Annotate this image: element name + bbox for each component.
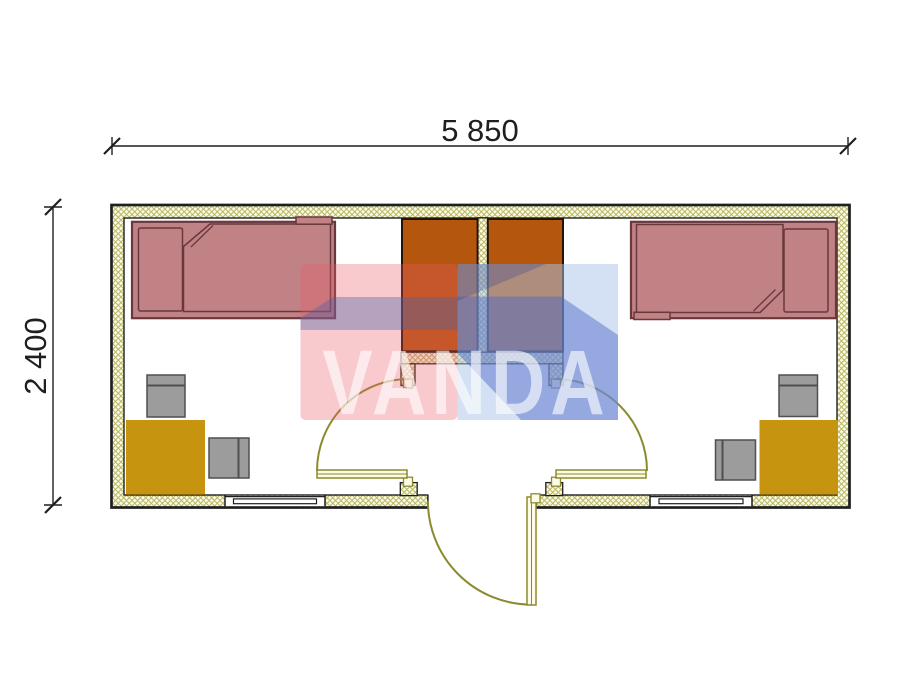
door-entrance-swing-arc	[428, 501, 532, 605]
chair-left-side-seat	[209, 438, 249, 478]
bed-right-pillow	[784, 229, 828, 312]
chair-left-top	[147, 375, 185, 417]
door-entrance	[428, 494, 540, 605]
watermark-text: VANDA	[322, 331, 609, 434]
window-right-glass	[659, 499, 743, 504]
chair-left-top-seat	[147, 375, 185, 417]
hinge-entrance-door	[531, 494, 540, 503]
bed-right	[631, 222, 836, 320]
chair-right-side	[716, 440, 756, 480]
desk-right	[760, 420, 839, 495]
chair-right-top-seat	[779, 375, 818, 417]
bed-left-pillow	[139, 228, 183, 311]
dimension-width-label: 5 850	[441, 113, 519, 148]
dimension-height-label: 2 400	[18, 317, 53, 395]
bed-right-blanket	[637, 225, 784, 313]
entrance-opening	[428, 494, 536, 509]
window-left-glass	[234, 499, 317, 504]
chair-right-top	[779, 375, 818, 417]
window-left	[225, 495, 325, 506]
watermark: VANDA	[301, 264, 619, 434]
desk-left	[126, 420, 205, 495]
dimension-left: 2 400	[18, 199, 62, 513]
dimension-top: 5 850	[104, 113, 856, 155]
floor-plan-page: 5 850 2 400	[0, 0, 924, 700]
chair-left-side	[209, 438, 249, 478]
entrance-opening-gap	[428, 494, 536, 509]
window-right	[650, 495, 752, 506]
floor-plan-canvas: 5 850 2 400	[0, 0, 924, 700]
bed-right-headboard-tab	[634, 312, 670, 319]
bed-left-headboard-tab	[296, 217, 332, 224]
